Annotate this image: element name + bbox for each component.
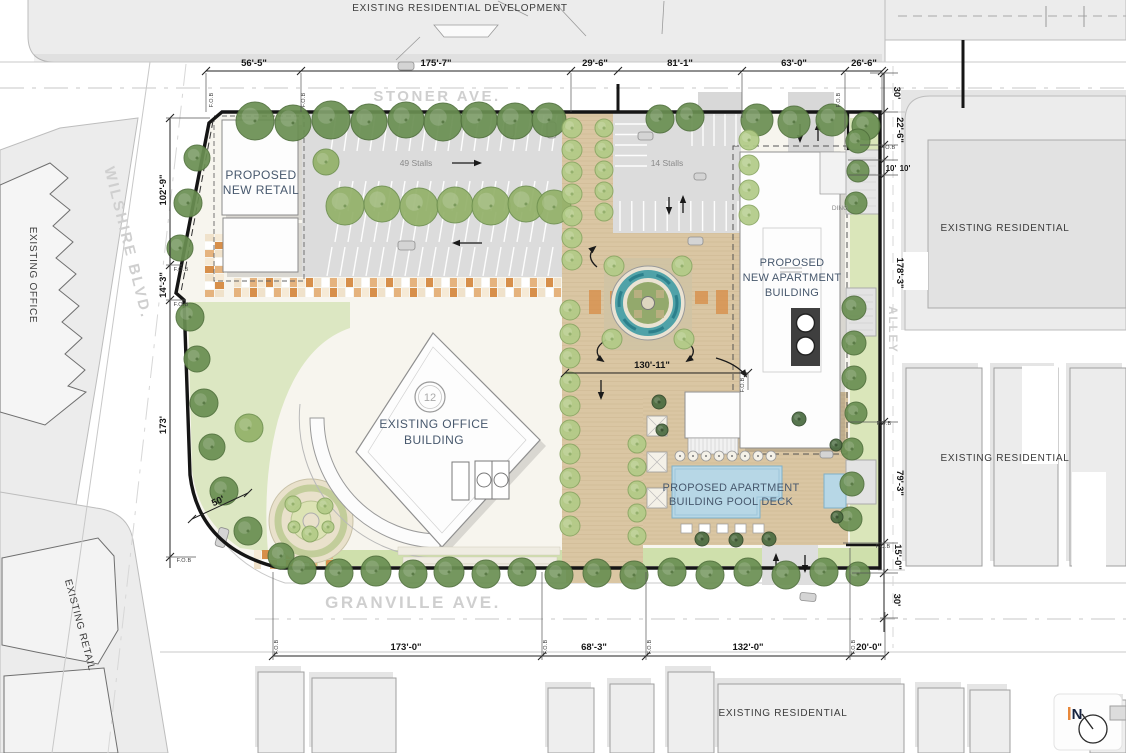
fob-marker: F.O.B bbox=[877, 421, 892, 427]
dim-top-0: 56'-5" bbox=[241, 58, 267, 69]
dim-right-2: 10' bbox=[886, 164, 897, 173]
fob-marker: F.O.B bbox=[740, 377, 746, 392]
street-label-stoner: STONER AVE. bbox=[373, 88, 500, 105]
context-label-residential-right-top: EXISTING RESIDENTIAL bbox=[940, 223, 1069, 234]
label-loading: DING bbox=[832, 205, 848, 212]
context-label-residential-bottom: EXISTING RESIDENTIAL bbox=[718, 708, 847, 719]
label-proposed-retail-1: PROPOSED bbox=[225, 168, 296, 182]
label-existing-office-2: BUILDING bbox=[404, 433, 464, 447]
label-pool-deck-2: BUILDING POOL DECK bbox=[669, 496, 794, 508]
dim-top-5: 26'-6" bbox=[851, 58, 877, 69]
site-plan: STONER AVE. GRANVILLE AVE. WILSHIRE BLVD… bbox=[0, 0, 1126, 753]
dim-right-6: 15'-0" bbox=[892, 544, 903, 570]
fob-marker: F.O.B bbox=[851, 639, 857, 654]
label-apartment-1: PROPOSED bbox=[760, 257, 825, 269]
dim-left-1: 14'-3" bbox=[158, 272, 169, 298]
fob-marker: F.O.B bbox=[274, 639, 280, 654]
north-arrow bbox=[1054, 694, 1126, 750]
dim-right-0: 30' bbox=[891, 87, 902, 100]
site-plan-canvas: STONER AVE. GRANVILLE AVE. WILSHIRE BLVD… bbox=[0, 0, 1126, 753]
dim-left-0: 102'-9" bbox=[158, 174, 169, 205]
fob-marker: F.O.B bbox=[543, 639, 549, 654]
fob-marker: F.O.B bbox=[174, 302, 189, 308]
dim-bottom-1: 68'-3" bbox=[581, 642, 607, 653]
north-letter-accent bbox=[1068, 707, 1071, 720]
fob-marker: F.O.B bbox=[174, 267, 189, 273]
fob-marker: F.O.B bbox=[177, 558, 192, 564]
fob-marker: F.O.B bbox=[647, 639, 653, 654]
dim-right-5: 79'-3" bbox=[894, 470, 905, 496]
context-label-residential-right-mid: EXISTING RESIDENTIAL bbox=[940, 453, 1069, 464]
dim-left-2: 173' bbox=[158, 416, 169, 434]
dim-top-1: 175'-7" bbox=[420, 58, 451, 69]
label-existing-office-1: EXISTING OFFICE bbox=[379, 417, 488, 431]
dim-bottom-3: 20'-0" bbox=[856, 642, 882, 653]
label-apartment-3: BUILDING bbox=[765, 287, 819, 299]
street-label-alley: ALLEY bbox=[886, 306, 898, 354]
street-label-granville: GRANVILLE AVE. bbox=[325, 593, 501, 612]
dim-right-4: 178'-3" bbox=[894, 257, 905, 288]
context-label-top-residential: EXISTING RESIDENTIAL DEVELOPMENT bbox=[352, 3, 567, 14]
context-label-existing-office: EXISTING OFFICE bbox=[27, 227, 38, 324]
dim-right-1: 22'-6" bbox=[894, 117, 905, 143]
dim-bottom-2: 132'-0" bbox=[732, 642, 763, 653]
label-main-lot-stalls: 49 Stalls bbox=[400, 158, 433, 168]
label-small-lot-stalls: 14 Stalls bbox=[651, 158, 684, 168]
label-proposed-retail-2: NEW RETAIL bbox=[223, 183, 299, 197]
label-apartment-2: NEW APARTMENT bbox=[743, 272, 842, 284]
fob-marker: F.O.B bbox=[876, 544, 891, 550]
dim-center: 130'-11" bbox=[634, 360, 670, 371]
label-pool-deck-1: PROPOSED APARTMENT bbox=[662, 482, 799, 494]
dim-right-7: 30' bbox=[891, 594, 902, 607]
dim-top-4: 63'-0" bbox=[781, 58, 807, 69]
label-office-floors: 12 bbox=[424, 392, 436, 404]
dim-top-3: 81'-1" bbox=[667, 58, 693, 69]
north-arrow-neighbor-box bbox=[1110, 706, 1126, 720]
fob-marker: F.O.B bbox=[836, 92, 842, 107]
fob-marker: F.O.B bbox=[881, 145, 896, 151]
dim-right-3: 10' bbox=[900, 164, 911, 173]
dim-top-2: 29'-6" bbox=[582, 58, 608, 69]
north-letter: N bbox=[1072, 706, 1083, 723]
fob-marker: F.O.B bbox=[209, 92, 215, 107]
dim-bottom-0: 173'-0" bbox=[390, 642, 421, 653]
fob-marker: F.O.B bbox=[301, 92, 307, 107]
